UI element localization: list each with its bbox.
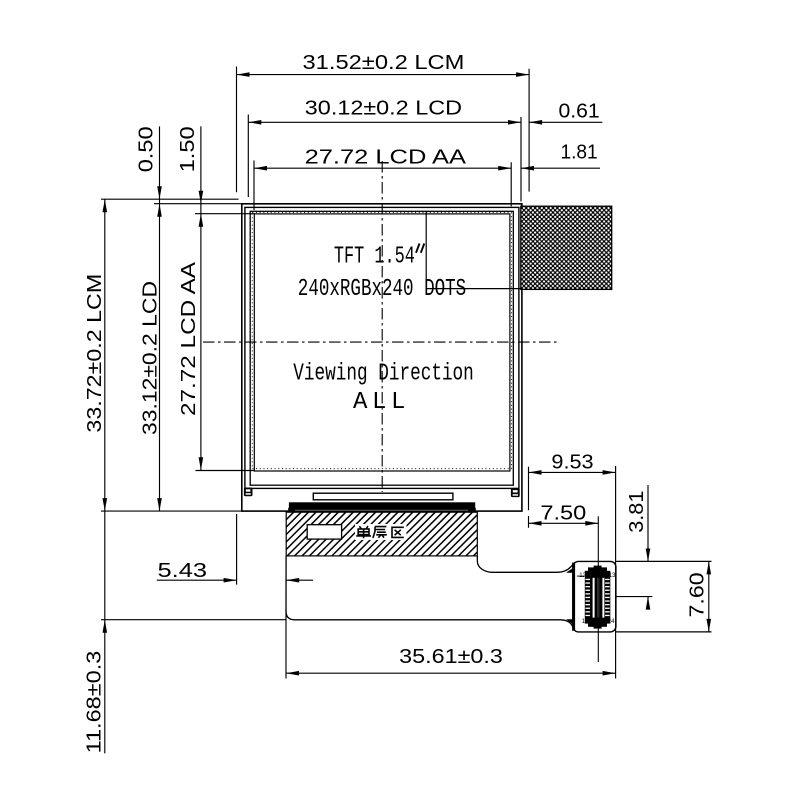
svg-text:7.60: 7.60 [686, 572, 708, 617]
svg-text:24: 24 [608, 619, 615, 625]
svg-text:7.50: 7.50 [540, 503, 586, 525]
svg-text:35.61±0.3: 35.61±0.3 [399, 646, 503, 668]
svg-text:5.43: 5.43 [158, 560, 208, 582]
svg-text:ALL: ALL [353, 389, 405, 416]
svg-text:30.12±0.2 LCD: 30.12±0.2 LCD [305, 97, 462, 119]
svg-text:11.68±0.3: 11.68±0.3 [83, 651, 105, 754]
svg-text:27.72 LCD AA: 27.72 LCD AA [178, 261, 200, 416]
svg-text:3.81: 3.81 [626, 491, 648, 533]
svg-text:1.50: 1.50 [177, 126, 199, 172]
svg-text:33.12±0.2 LCD: 33.12±0.2 LCD [139, 281, 161, 435]
svg-text:240xRGBx240 DOTS: 240xRGBx240 DOTS [298, 276, 466, 303]
svg-text:1.81: 1.81 [561, 141, 598, 163]
svg-text:27.72 LCD AA: 27.72 LCD AA [305, 147, 467, 169]
svg-text:Viewing Direction: Viewing Direction [293, 360, 474, 387]
svg-text:TFT 1.54: TFT 1.54 [334, 244, 415, 271]
svg-text:0.61: 0.61 [559, 100, 600, 122]
svg-text:9.53: 9.53 [551, 451, 593, 473]
svg-text:31.52±0.2 LCM: 31.52±0.2 LCM [303, 52, 465, 74]
svg-text:12: 12 [579, 573, 586, 579]
svg-text:0.50: 0.50 [136, 126, 158, 172]
svg-text:33.72±0.2 LCM: 33.72±0.2 LCM [84, 274, 106, 433]
